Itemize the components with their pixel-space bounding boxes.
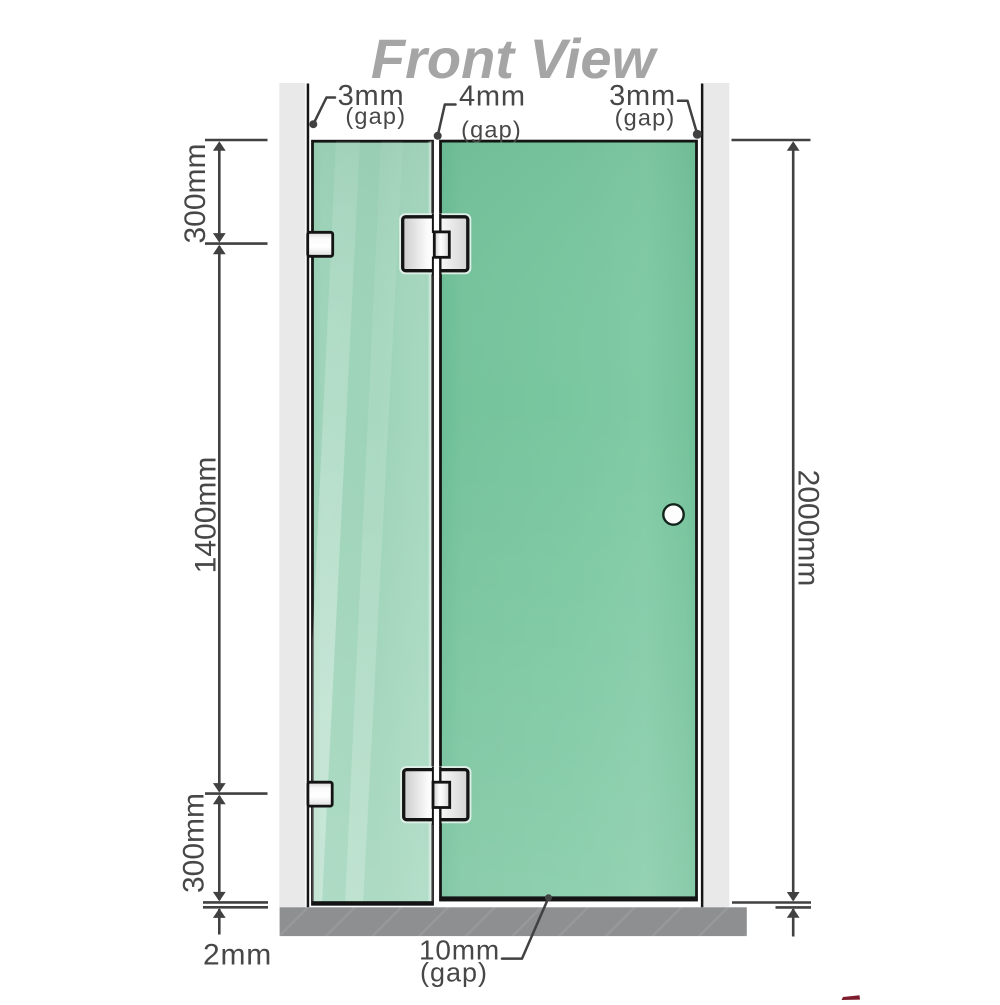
svg-text:(gap): (gap) — [461, 116, 522, 142]
svg-text:(gap): (gap) — [345, 103, 406, 129]
svg-text:(gap): (gap) — [420, 958, 488, 988]
svg-text:1400mm: 1400mm — [189, 457, 222, 574]
svg-text:2000mm: 2000mm — [792, 470, 825, 587]
svg-text:4mm: 4mm — [459, 81, 526, 113]
svg-text:2mm: 2mm — [203, 939, 272, 972]
svg-text:(gap): (gap) — [615, 104, 676, 130]
svg-text:300mm: 300mm — [177, 793, 210, 893]
svg-text:300mm: 300mm — [179, 143, 212, 243]
